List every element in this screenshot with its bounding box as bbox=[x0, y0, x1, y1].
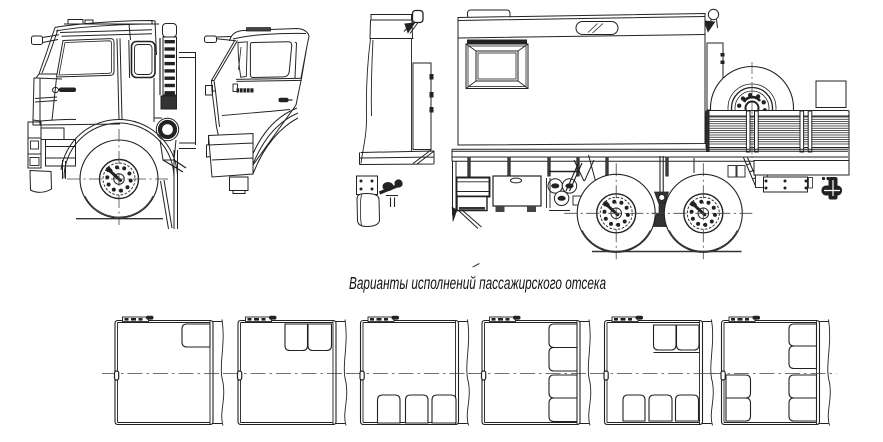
svg-text:Варианты исполнений пассажирск: Варианты исполнений пассажирского отсека bbox=[349, 273, 606, 293]
